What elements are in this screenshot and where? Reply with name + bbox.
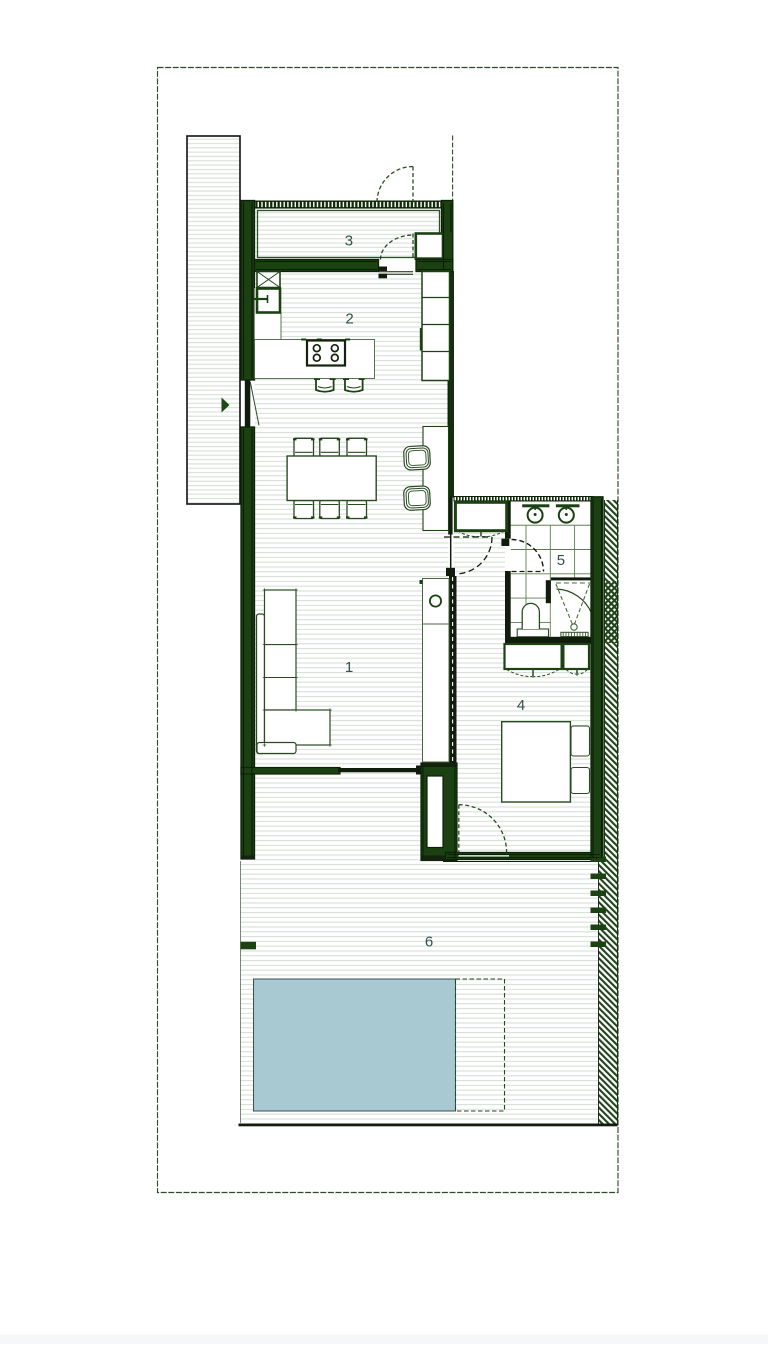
svg-text:6: 6 bbox=[425, 934, 433, 951]
svg-text:2: 2 bbox=[345, 311, 353, 328]
svg-text:1: 1 bbox=[345, 659, 353, 676]
svg-text:4: 4 bbox=[517, 697, 525, 714]
svg-text:3: 3 bbox=[345, 233, 353, 250]
svg-text:5: 5 bbox=[557, 552, 565, 569]
